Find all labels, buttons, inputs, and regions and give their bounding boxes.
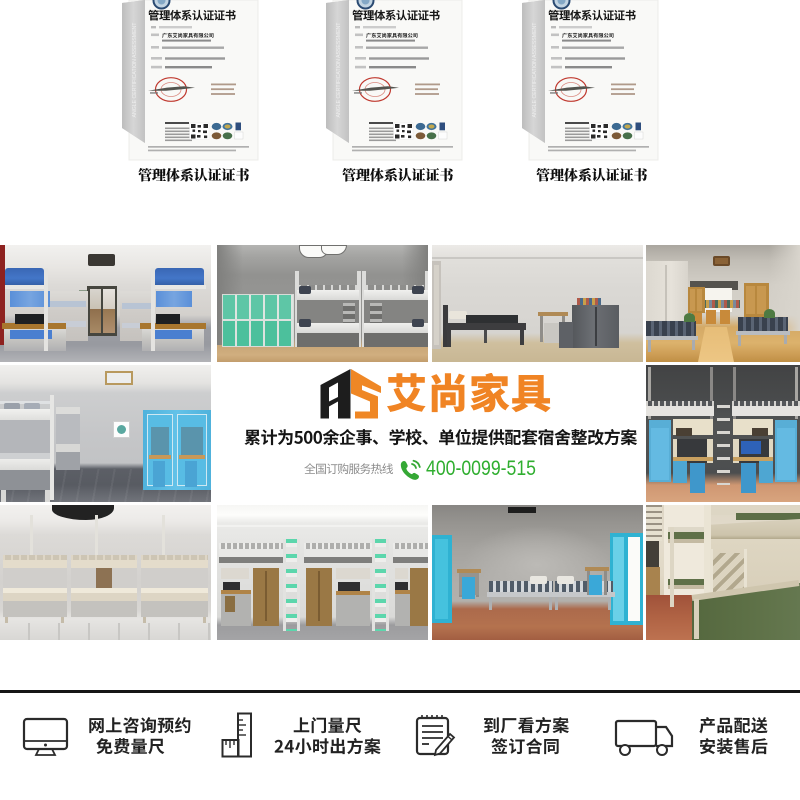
svg-text:400-0099-515: 400-0099-515: [426, 458, 536, 480]
